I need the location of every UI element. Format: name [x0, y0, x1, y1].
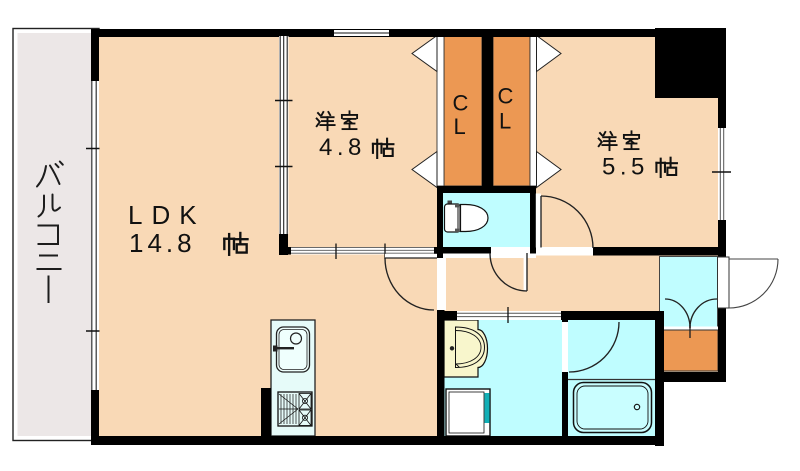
svg-text:L: L	[454, 114, 466, 139]
svg-text:14.8: 14.8	[129, 228, 196, 258]
svg-text:LDK: LDK	[128, 200, 206, 230]
svg-text:L: L	[499, 109, 511, 134]
svg-text:4.8: 4.8	[319, 134, 366, 161]
svg-text:C: C	[498, 84, 514, 109]
svg-text:5.5: 5.5	[602, 154, 649, 181]
svg-text:C: C	[453, 91, 469, 116]
